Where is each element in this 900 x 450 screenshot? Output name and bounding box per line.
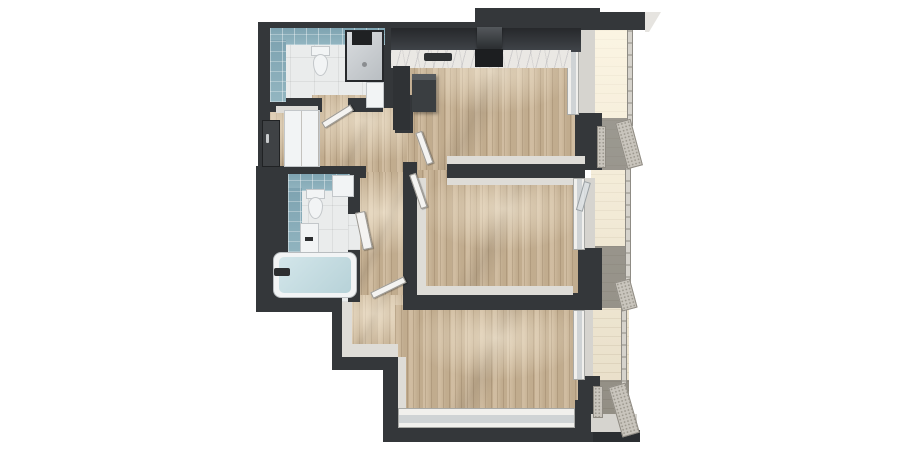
floor-plan <box>0 0 900 450</box>
island-unit <box>412 74 436 112</box>
bedroom-bottom-floor <box>395 305 580 415</box>
washbasin-cabinet <box>366 82 384 108</box>
kitchen-sink <box>424 53 452 61</box>
window-bedroom-bottom-side <box>573 310 585 380</box>
wall-step-vertical-1 <box>332 302 342 362</box>
wardrobe-divider <box>301 111 302 166</box>
entrance-door-handle <box>266 134 269 143</box>
wardrobe <box>284 110 320 167</box>
cooktop <box>475 49 503 67</box>
range-hood-icon <box>477 27 502 48</box>
exterior-wall-bottom <box>383 428 600 442</box>
bedroom-bottom-step-face <box>342 344 398 357</box>
balcony-railing-2 <box>625 168 631 292</box>
balcony-jamb-strip <box>585 310 593 383</box>
balcony-jamb-strip <box>579 30 595 115</box>
bedroom-bottom-left-face <box>398 357 406 410</box>
balcony-top-block <box>597 12 645 30</box>
shower-drain <box>362 62 367 67</box>
bathroom-top-wall-tile-left <box>270 40 286 102</box>
roof-edge <box>645 12 661 32</box>
bedroom-middle-bottom-face <box>417 286 573 295</box>
bedroom-middle-floor <box>410 170 580 300</box>
storage-box <box>332 175 354 197</box>
bathtub-faucet <box>274 268 290 276</box>
shower-head-unit <box>352 31 372 45</box>
wall-bedroom-middle-bottom <box>403 293 598 310</box>
tall-dark-cabinet <box>393 66 410 130</box>
privacy-screen-column-1 <box>597 126 606 168</box>
wall-kitchen-bedroom-middle <box>447 162 585 178</box>
privacy-screen-column-3 <box>593 386 603 418</box>
balcony-divider-1 <box>578 248 602 310</box>
vanity-faucet <box>305 237 313 241</box>
bedroom-middle-top-face <box>447 178 573 185</box>
window-bedroom-bottom <box>398 408 575 428</box>
entrance-door <box>262 120 280 167</box>
bathtub-water <box>279 257 351 293</box>
kitchen-bottom-face <box>447 156 585 164</box>
balcony-railing-1 <box>627 30 633 126</box>
wall-bathroom-bottom-bottom <box>256 296 342 312</box>
exterior-wall-left-mid <box>256 166 288 256</box>
